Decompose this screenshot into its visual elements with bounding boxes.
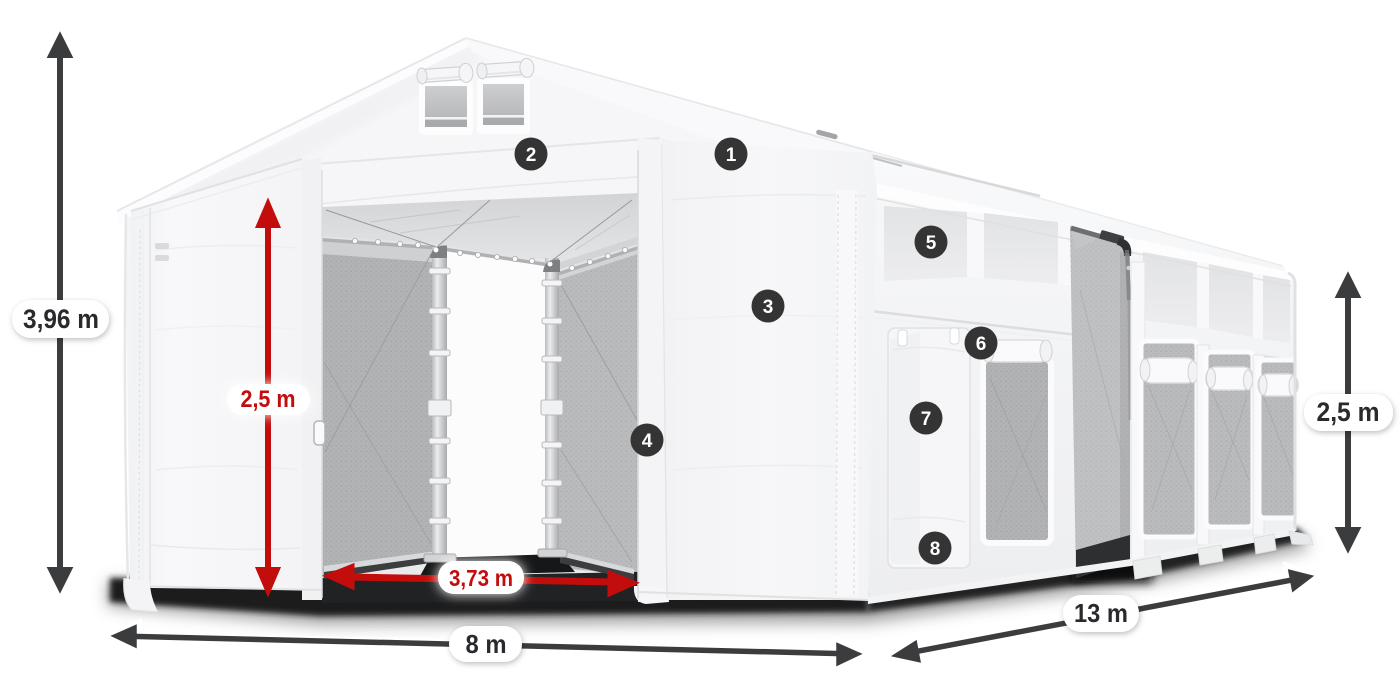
svg-text:1: 1 xyxy=(726,145,737,166)
svg-text:4: 4 xyxy=(642,431,653,452)
svg-text:3: 3 xyxy=(763,297,774,318)
svg-text:7: 7 xyxy=(921,409,932,430)
svg-text:3,73 m: 3,73 m xyxy=(449,565,513,591)
svg-text:5: 5 xyxy=(926,233,937,254)
svg-text:6: 6 xyxy=(976,334,987,355)
svg-text:8: 8 xyxy=(930,539,941,560)
svg-text:2,5 m: 2,5 m xyxy=(241,386,296,413)
svg-text:3,96 m: 3,96 m xyxy=(23,304,99,334)
svg-text:2: 2 xyxy=(526,145,537,166)
svg-text:13 m: 13 m xyxy=(1074,598,1128,628)
svg-text:2,5 m: 2,5 m xyxy=(1317,397,1380,427)
svg-text:8 m: 8 m xyxy=(466,629,507,659)
